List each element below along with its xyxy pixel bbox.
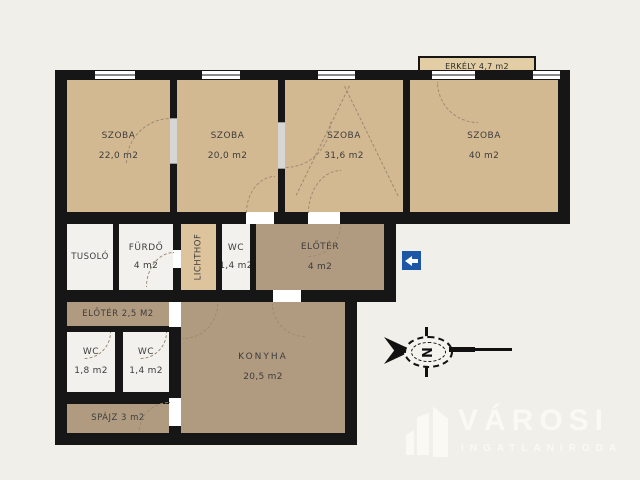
- room-label: SZOBA: [102, 132, 136, 141]
- room-label: WC: [228, 244, 244, 253]
- room-label: FÜRDŐ: [129, 244, 164, 253]
- room-area: 40 m2: [469, 152, 499, 161]
- window: [95, 71, 135, 79]
- room-label: LICHTHOF: [194, 234, 204, 281]
- wall-outer-left: [55, 70, 67, 445]
- compass-north-letter: N: [422, 347, 435, 358]
- room-label: SZOBA: [211, 132, 245, 141]
- room-label: KONYHA: [238, 353, 288, 362]
- window: [318, 71, 355, 79]
- agency-logo: VÁROSI INGATLANIRODA: [400, 396, 630, 466]
- logo-building-icon: [406, 430, 414, 455]
- logo-subtitle: INGATLANIRODA: [461, 444, 622, 454]
- logo-building-icon: [433, 402, 448, 457]
- window: [202, 71, 240, 79]
- room-area: 4 m2: [308, 263, 332, 272]
- left-arrow-icon: [405, 256, 412, 266]
- door-opening: [278, 122, 285, 169]
- room-label: SZOBA: [467, 132, 501, 141]
- room-area: 20,0 m2: [208, 152, 248, 161]
- logo-title: VÁROSI: [458, 406, 609, 436]
- wall-outer-bottom: [55, 433, 357, 445]
- wall-eloter-right: [384, 212, 396, 302]
- compass-tail: [449, 347, 475, 352]
- room-szoba-4: SZOBA 40 m2: [410, 80, 558, 212]
- room-label: ELŐTÉR 2,5 M2: [82, 310, 153, 319]
- room-area: 20,5 m2: [243, 373, 283, 382]
- door-opening: [308, 212, 340, 224]
- logo-building-icon: [417, 410, 429, 455]
- room-label: SPÁJZ 3 m2: [91, 414, 145, 423]
- door-opening: [169, 302, 181, 327]
- window: [533, 71, 560, 79]
- wall-konyha-right: [345, 290, 357, 445]
- room-tusolo: TUSOLÓ: [67, 224, 113, 290]
- window-balcony-door: [432, 71, 475, 79]
- wall-wc-wc: [115, 332, 123, 392]
- door-opening: [169, 398, 181, 426]
- door-opening: [246, 212, 274, 224]
- wall-szoba3-szoba4: [403, 80, 410, 212]
- wall-lichthof-wc: [216, 224, 222, 290]
- room-area: 31,6 m2: [324, 152, 364, 161]
- door-opening: [170, 118, 177, 164]
- wall-outer-right: [558, 70, 570, 224]
- compass-ring: N: [404, 336, 453, 368]
- wall-tusolo-furdo: [113, 224, 119, 290]
- room-label: TUSOLÓ: [71, 253, 109, 262]
- room-label: SZOBA: [327, 132, 361, 141]
- floor-plan: ERKÉLY 4,7 m2 SZOBA 22,0 m2 SZOBA 20,0 m…: [0, 0, 640, 480]
- room-area: 1,8 m2: [74, 367, 107, 376]
- room-area: 1,4 m2: [129, 367, 162, 376]
- room-eloter-2: ELŐTÉR 2,5 M2: [67, 302, 169, 326]
- door-opening: [173, 250, 181, 268]
- wall-wc-eloter: [250, 224, 256, 290]
- room-area: 1,4 m2: [219, 262, 252, 271]
- compass-tail: [473, 348, 512, 351]
- entrance-arrow-sign: [402, 251, 421, 270]
- room-lichthof: LICHTHOF: [181, 224, 216, 290]
- room-wc-middle: WC 1,4 m2: [222, 224, 250, 290]
- door-opening: [273, 290, 301, 302]
